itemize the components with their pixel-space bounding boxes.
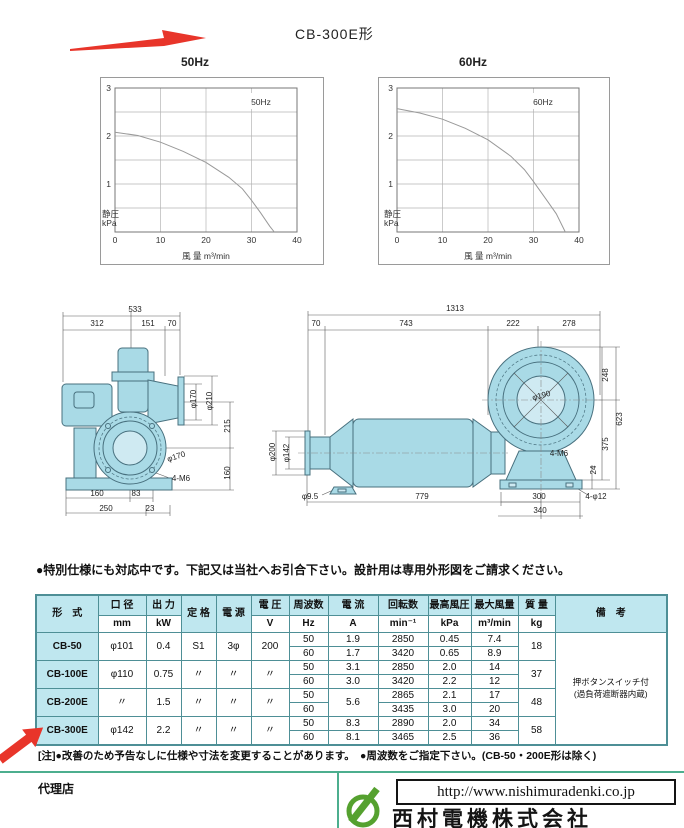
column-unit: kg xyxy=(518,616,555,633)
table-cell: φ101 xyxy=(98,633,146,661)
table-cell: 7.4 xyxy=(471,633,518,647)
table-cell: 〃 xyxy=(216,689,251,717)
y-axis-label: kPa xyxy=(384,218,399,228)
table-cell: 〃 xyxy=(216,717,251,746)
svg-text:40: 40 xyxy=(292,235,302,245)
column-header: 回転数 xyxy=(378,595,428,616)
remarks-cell: 押ボタンスイッチ付(過負荷遮断器内蔵) xyxy=(555,633,667,746)
dimension-label: φ200 xyxy=(268,442,277,461)
table-cell: 1.7 xyxy=(328,647,378,661)
table-cell: 〃 xyxy=(251,661,289,689)
table-cell: 8.9 xyxy=(471,647,518,661)
table-cell: 0.4 xyxy=(146,633,181,661)
column-header: 最大風量 xyxy=(471,595,518,616)
column-unit: V xyxy=(251,616,289,633)
table-cell: 2.0 xyxy=(428,717,471,731)
table-cell: 〃 xyxy=(216,661,251,689)
svg-text:30: 30 xyxy=(529,235,539,245)
company-logo-icon xyxy=(340,786,392,828)
dimension-label: 70 xyxy=(312,319,321,328)
x-axis-label: 風 量 m³/min xyxy=(464,251,512,261)
table-cell: 60 xyxy=(289,731,328,746)
svg-text:3: 3 xyxy=(388,83,393,93)
column-header: 最高風圧 xyxy=(428,595,471,616)
table-cell: 0.65 xyxy=(428,647,471,661)
table-cell: 36 xyxy=(471,731,518,746)
svg-text:3: 3 xyxy=(106,83,111,93)
table-cell: 8.3 xyxy=(328,717,378,731)
dimension-label: 4-M6 xyxy=(550,449,569,458)
table-cell: 2890 xyxy=(378,717,428,731)
table-cell: 1.5 xyxy=(146,689,181,717)
remarks-line: (過負荷遮断器内蔵) xyxy=(556,689,667,700)
blower-side-body xyxy=(298,341,602,495)
dimension-label: 623 xyxy=(615,412,624,426)
table-cell: 60 xyxy=(289,675,328,689)
red-arrow-icon xyxy=(0,712,48,770)
performance-chart-60hz: 60Hz123010203040静圧kPa風 量 m³/min xyxy=(378,77,610,265)
special-spec-note: ●特別仕様にも対応中です。下記又は当社へお引合下さい。設計用は専用外形図をご請求… xyxy=(36,561,570,578)
curve xyxy=(397,109,565,232)
column-header: 形 式 xyxy=(36,595,98,633)
table-cell: 12 xyxy=(471,675,518,689)
svg-text:10: 10 xyxy=(156,235,166,245)
spec-table: 形 式口 径出 力定 格電 源電 圧周波数電 流回転数最高風圧最大風量質 量備 … xyxy=(35,594,668,746)
performance-chart-50hz: 50Hz123010203040静圧kPa風 量 m³/min xyxy=(100,77,324,265)
remarks-line: 押ボタンスイッチ付 xyxy=(556,677,667,688)
chart-title-50hz: 50Hz xyxy=(100,55,290,69)
dimension-label: 340 xyxy=(533,506,547,515)
table-cell: 50 xyxy=(289,689,328,703)
chart-title-60hz: 60Hz xyxy=(378,55,568,69)
table-cell: 2.0 xyxy=(428,661,471,675)
svg-text:1: 1 xyxy=(106,179,111,189)
table-cell: 3435 xyxy=(378,703,428,717)
table-cell: 3.1 xyxy=(328,661,378,675)
table-cell: 50 xyxy=(289,661,328,675)
dimension-label: 23 xyxy=(146,504,155,513)
table-cell: 〃 xyxy=(98,689,146,717)
blower-front-body xyxy=(62,348,184,490)
table-cell: 3420 xyxy=(378,647,428,661)
table-cell: 3φ xyxy=(216,633,251,661)
dimension-label: 250 xyxy=(99,504,113,513)
page-title: CB-300E形 xyxy=(295,24,374,44)
column-header: 周波数 xyxy=(289,595,328,616)
drawing-front-view: 53331215170φ170φ210215160φ1704-M61608325… xyxy=(50,298,260,530)
table-cell: 2850 xyxy=(378,633,428,647)
dimension-label: 743 xyxy=(399,319,413,328)
svg-text:40: 40 xyxy=(574,235,584,245)
table-cell: 60 xyxy=(289,647,328,661)
table-cell: φ142 xyxy=(98,717,146,746)
dimension-label: 1313 xyxy=(446,304,464,313)
column-header: 備 考 xyxy=(555,595,667,633)
dimension-label: φ170 xyxy=(166,449,187,463)
column-unit: Hz xyxy=(289,616,328,633)
column-header: 口 径 xyxy=(98,595,146,616)
table-cell: 5.6 xyxy=(328,689,378,717)
column-header: 定 格 xyxy=(181,595,216,633)
table-cell: 2.1 xyxy=(428,689,471,703)
table-cell: φ110 xyxy=(98,661,146,689)
table-cell: 200 xyxy=(251,633,289,661)
table-cell: 2.5 xyxy=(428,731,471,746)
dimension-label: 779 xyxy=(415,492,429,501)
table-cell: 17 xyxy=(471,689,518,703)
column-unit: kW xyxy=(146,616,181,633)
chart-60hz-plot: 60Hz123010203040静圧kPa風 量 m³/min xyxy=(383,78,605,263)
dimension-label: 70 xyxy=(168,319,177,328)
company-name: 西村電機株式会社 xyxy=(392,803,592,828)
dimension-label: 278 xyxy=(562,319,576,328)
table-cell: 〃 xyxy=(181,689,216,717)
dimension-label: φ9.5 xyxy=(302,492,319,501)
table-cell: 3420 xyxy=(378,675,428,689)
table-cell: 18 xyxy=(518,633,555,661)
chart-50hz-plot: 50Hz123010203040静圧kPa風 量 m³/min xyxy=(101,78,323,263)
column-unit: mm xyxy=(98,616,146,633)
table-cell: 1.9 xyxy=(328,633,378,647)
svg-text:0: 0 xyxy=(395,235,400,245)
table-cell: 37 xyxy=(518,661,555,689)
table-cell: 50 xyxy=(289,717,328,731)
column-unit: A xyxy=(328,616,378,633)
dimension-label: 151 xyxy=(141,319,155,328)
dimension-label: 533 xyxy=(128,305,142,314)
table-cell: 8.1 xyxy=(328,731,378,746)
svg-text:1: 1 xyxy=(388,179,393,189)
table-cell: 〃 xyxy=(181,661,216,689)
svg-text:0: 0 xyxy=(113,235,118,245)
chart-inner-label: 60Hz xyxy=(533,97,553,107)
company-url: http://www.nishimuradenki.co.jp xyxy=(396,779,676,805)
column-unit: kPa xyxy=(428,616,471,633)
y-axis-label: kPa xyxy=(102,218,117,228)
column-header: 電 源 xyxy=(216,595,251,633)
dimension-label: 222 xyxy=(506,319,520,328)
drawing-side-view: 13137074322227824862337524φ1904-M6φ200φ1… xyxy=(258,295,684,535)
column-unit: min⁻¹ xyxy=(378,616,428,633)
svg-text:20: 20 xyxy=(201,235,211,245)
dimension-label: φ142 xyxy=(282,443,291,462)
footer-vertical-divider xyxy=(337,771,339,828)
curve xyxy=(115,132,274,232)
table-cell: 2.2 xyxy=(428,675,471,689)
model-cell: CB-50 xyxy=(36,633,98,661)
table-cell: 〃 xyxy=(251,717,289,746)
table-cell: 14 xyxy=(471,661,518,675)
table-cell: 〃 xyxy=(251,689,289,717)
table-cell: 0.45 xyxy=(428,633,471,647)
dimension-label: φ170 xyxy=(189,389,198,408)
column-unit: m³/min xyxy=(471,616,518,633)
x-axis-label: 風 量 m³/min xyxy=(182,251,230,261)
table-cell: 58 xyxy=(518,717,555,746)
dimension-label: 215 xyxy=(223,419,232,433)
svg-text:20: 20 xyxy=(483,235,493,245)
table-cell: 2865 xyxy=(378,689,428,703)
table-cell: 20 xyxy=(471,703,518,717)
svg-text:2: 2 xyxy=(106,131,111,141)
dimension-label: 83 xyxy=(132,489,141,498)
model-cell: CB-100E xyxy=(36,661,98,689)
dimension-label: 4-φ12 xyxy=(585,492,607,501)
table-cell: 50 xyxy=(289,633,328,647)
red-arrow-icon xyxy=(68,26,208,54)
table-cell: 2.2 xyxy=(146,717,181,746)
table-row: CB-50φ1010.4S13φ200501.928500.457.418押ボタ… xyxy=(36,633,667,647)
column-header: 質 量 xyxy=(518,595,555,616)
column-header: 電 圧 xyxy=(251,595,289,616)
table-cell: 2850 xyxy=(378,661,428,675)
svg-text:10: 10 xyxy=(438,235,448,245)
datasheet-page: CB-300E形 50Hz 60Hz 50Hz123010203040静圧kPa… xyxy=(0,0,684,828)
table-cell: 0.75 xyxy=(146,661,181,689)
dimension-label: 300 xyxy=(532,492,546,501)
dimension-label: φ210 xyxy=(205,391,214,410)
dimension-label: 160 xyxy=(90,489,104,498)
table-cell: 3.0 xyxy=(428,703,471,717)
footer-divider xyxy=(0,771,684,773)
table-cell: S1 xyxy=(181,633,216,661)
dimension-label: 248 xyxy=(601,368,610,382)
dimension-label: 375 xyxy=(601,437,610,451)
chart-inner-label: 50Hz xyxy=(251,97,271,107)
table-cell: 3.0 xyxy=(328,675,378,689)
footnote: [注]●改善のため予告なしに仕様や寸法を変更することがあります。 ●周波数をご指… xyxy=(38,748,596,763)
column-header: 出 力 xyxy=(146,595,181,616)
svg-text:2: 2 xyxy=(388,131,393,141)
dimension-label: 160 xyxy=(223,466,232,480)
spec-table-wrap: 形 式口 径出 力定 格電 源電 圧周波数電 流回転数最高風圧最大風量質 量備 … xyxy=(35,594,668,746)
table-cell: 48 xyxy=(518,689,555,717)
dealer-label: 代理店 xyxy=(38,780,74,797)
dimension-label: 4-M6 xyxy=(172,474,191,483)
table-cell: 3465 xyxy=(378,731,428,746)
svg-text:30: 30 xyxy=(247,235,257,245)
table-cell: 〃 xyxy=(181,717,216,746)
table-cell: 60 xyxy=(289,703,328,717)
column-header: 電 流 xyxy=(328,595,378,616)
dimension-label: 312 xyxy=(90,319,104,328)
table-cell: 34 xyxy=(471,717,518,731)
dimension-label: 24 xyxy=(589,465,598,474)
